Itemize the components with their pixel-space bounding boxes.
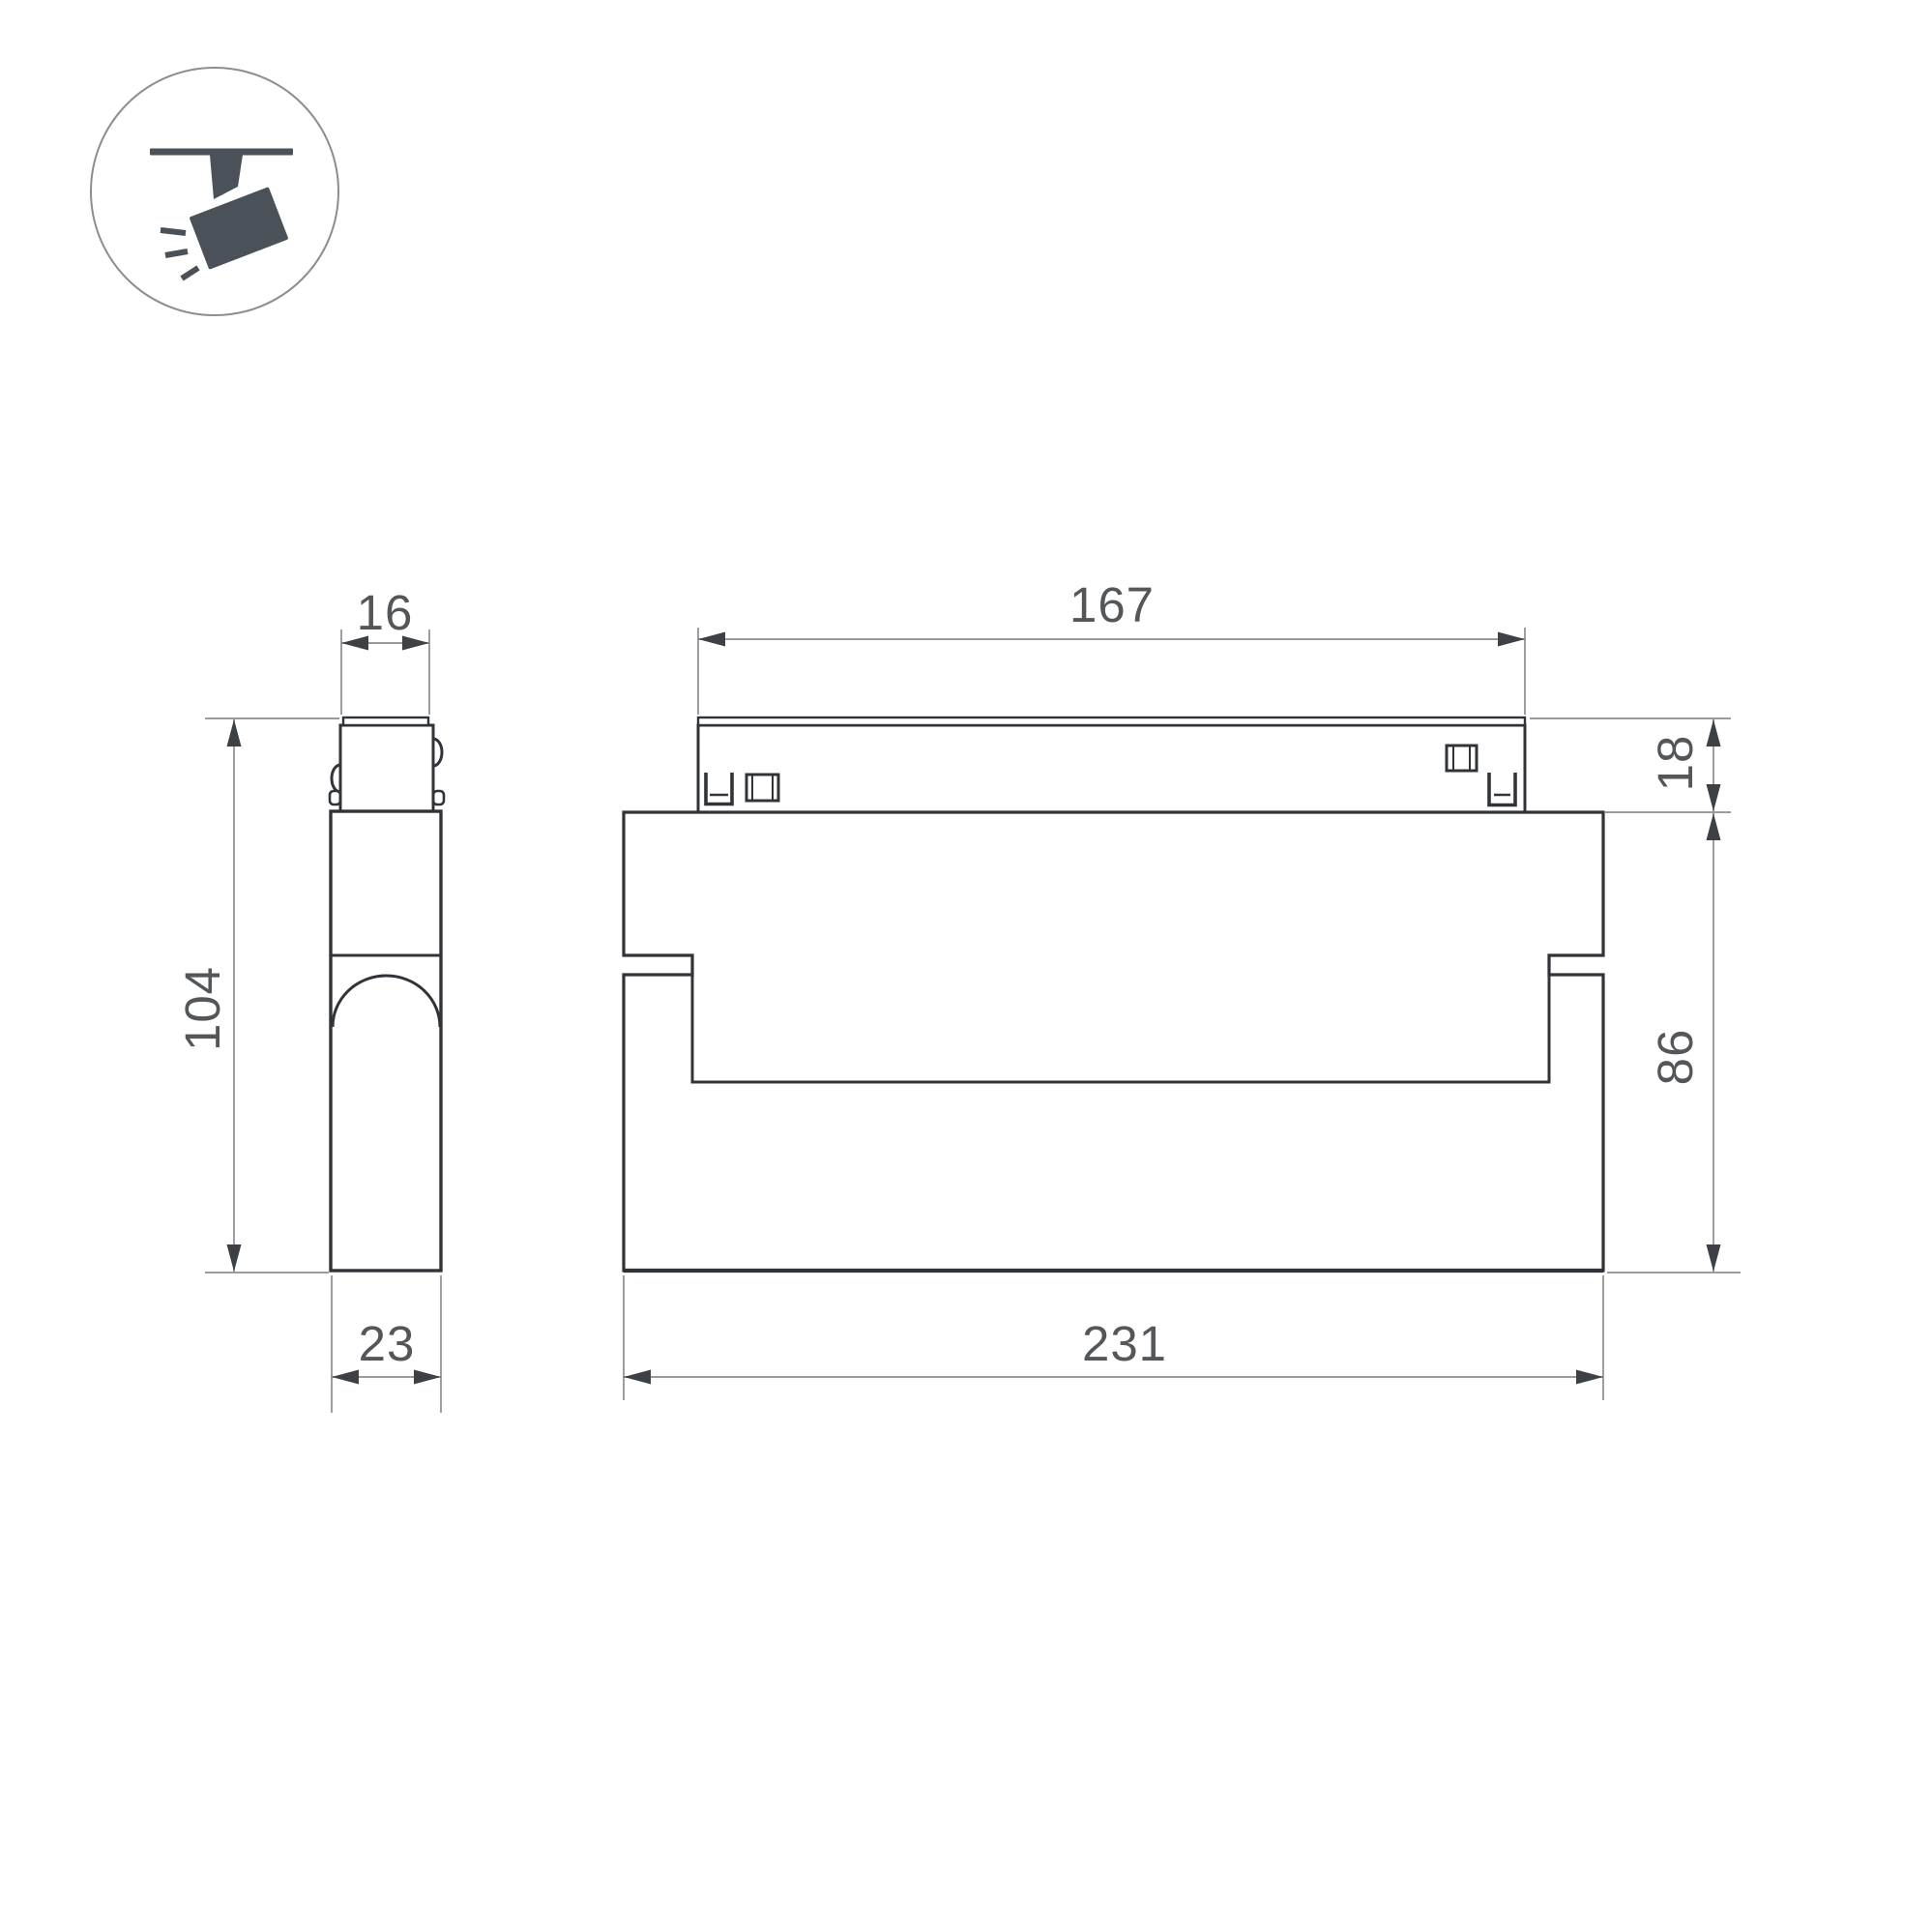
arrowhead-up xyxy=(1707,719,1721,746)
dimension-label-104: 104 xyxy=(175,966,230,1051)
front-top-plate xyxy=(698,717,1525,725)
dimension-label-16: 16 xyxy=(357,585,414,640)
dimension-side-depth: 23 xyxy=(332,1275,441,1413)
arrowhead-left xyxy=(624,1370,651,1385)
side-track-stem xyxy=(340,725,433,811)
dimension-label-23: 23 xyxy=(359,1316,416,1371)
front-view xyxy=(624,717,1603,1271)
arrowhead-left xyxy=(698,632,725,647)
dimension-side-track-width: 16 xyxy=(341,585,429,715)
dimension-label-231: 231 xyxy=(1082,1316,1167,1371)
dimension-front-adapter-height: 18 xyxy=(1530,718,1731,812)
icon-track-bar xyxy=(150,149,293,156)
front-track-adapter xyxy=(698,725,1525,812)
arrowhead-right xyxy=(1576,1370,1603,1385)
dimension-label-167: 167 xyxy=(1069,577,1155,632)
arrowhead-up xyxy=(227,719,242,746)
dimension-front-body-length: 231 xyxy=(624,1275,1603,1400)
dimension-label-18: 18 xyxy=(1648,735,1703,792)
dimension-label-86: 86 xyxy=(1648,1029,1703,1086)
icon-light-ray xyxy=(165,251,188,255)
arrowhead-up xyxy=(1707,813,1721,840)
side-body xyxy=(331,811,441,1271)
arrowhead-right xyxy=(1498,632,1525,647)
arrowhead-left xyxy=(332,1370,359,1385)
side-view xyxy=(330,717,444,1271)
dimension-side-height: 104 xyxy=(175,718,339,1273)
arrowhead-down xyxy=(1707,1244,1721,1272)
mount-type-icon xyxy=(91,68,338,315)
side-top-cap xyxy=(343,717,428,725)
drawing-svg: 16 104 23 167 xyxy=(0,0,1932,1932)
arrowhead-right xyxy=(414,1370,441,1385)
arrowhead-down xyxy=(227,1244,242,1272)
side-contact-tab-left xyxy=(330,791,340,805)
front-body xyxy=(624,812,1603,1271)
technical-drawing-canvas: 16 104 23 167 xyxy=(0,0,1932,1932)
side-contact-tab-right xyxy=(433,791,444,805)
dimension-front-body-height: 86 xyxy=(1607,813,1741,1273)
dimension-front-adapter-length: 167 xyxy=(698,577,1525,715)
icon-light-ray xyxy=(161,230,186,233)
arrowhead-down xyxy=(1707,784,1721,811)
